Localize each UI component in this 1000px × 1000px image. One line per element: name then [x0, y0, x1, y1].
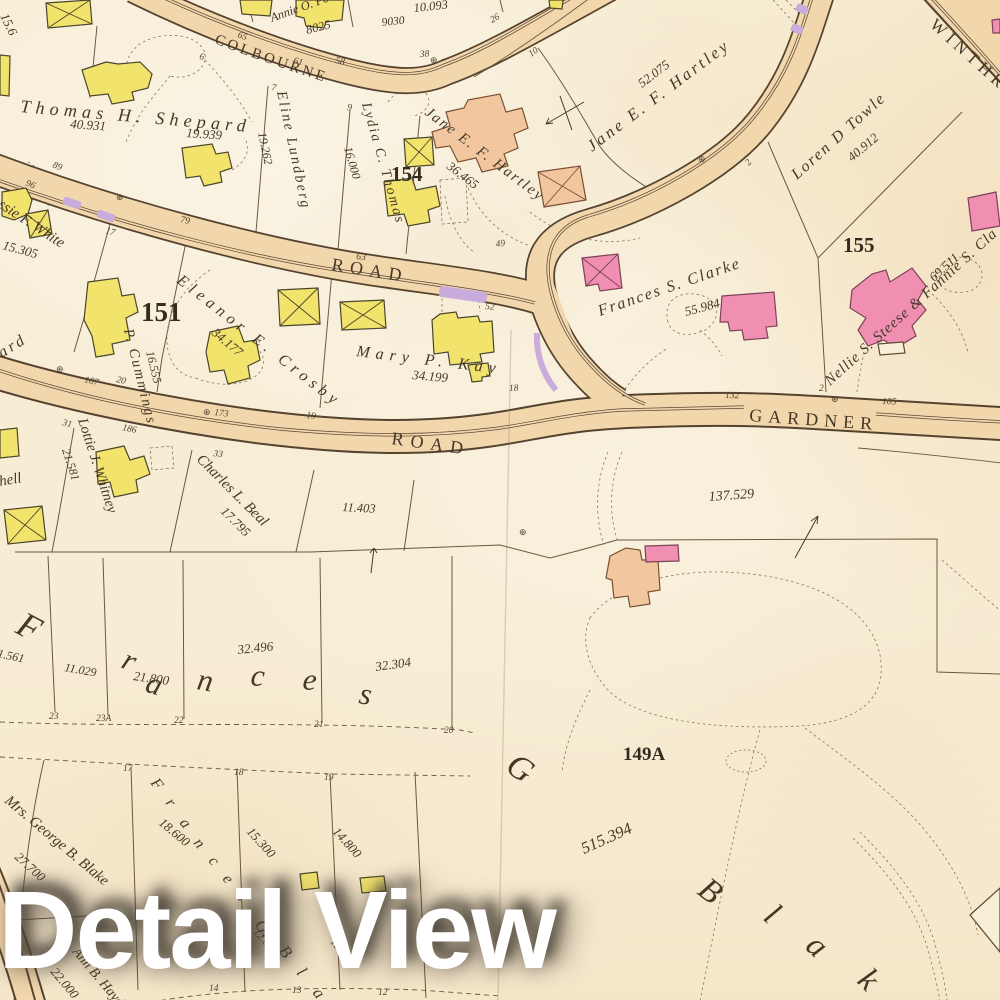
svg-text:20: 20	[444, 726, 454, 736]
svg-text:22: 22	[174, 716, 184, 726]
svg-text:105: 105	[882, 397, 897, 407]
svg-text:⊕: ⊕	[519, 527, 527, 537]
svg-text:17: 17	[123, 764, 134, 774]
svg-text:21: 21	[314, 720, 324, 730]
svg-text:149A: 149A	[623, 744, 666, 765]
svg-text:18: 18	[234, 768, 244, 778]
svg-text:19: 19	[324, 773, 334, 783]
svg-text:38: 38	[419, 49, 430, 60]
svg-text:137.529: 137.529	[708, 487, 754, 505]
svg-text:⊕: ⊕	[203, 407, 211, 417]
svg-text:132: 132	[725, 391, 740, 401]
svg-text:63: 63	[356, 252, 367, 263]
svg-text:19: 19	[306, 411, 317, 422]
svg-text:173: 173	[214, 408, 230, 420]
svg-text:52: 52	[485, 302, 495, 313]
svg-text:33: 33	[212, 449, 224, 460]
svg-text:19.939: 19.939	[186, 125, 223, 142]
svg-text:23: 23	[49, 712, 59, 722]
svg-text:151: 151	[141, 297, 182, 327]
svg-text:⊕: ⊕	[116, 192, 124, 202]
svg-text:⊕: ⊕	[430, 55, 438, 65]
svg-text:⊕: ⊕	[831, 394, 839, 404]
svg-text:155: 155	[843, 233, 875, 257]
svg-text:⊕: ⊕	[56, 364, 64, 374]
svg-text:58: 58	[334, 56, 345, 68]
svg-text:2: 2	[819, 384, 824, 394]
svg-text:11.403: 11.403	[342, 500, 376, 516]
svg-text:40.931: 40.931	[70, 116, 107, 133]
svg-text:49: 49	[495, 239, 506, 250]
svg-text:23A: 23A	[96, 714, 112, 724]
svg-text:⊕: ⊕	[698, 154, 706, 164]
svg-text:9030: 9030	[381, 15, 405, 29]
